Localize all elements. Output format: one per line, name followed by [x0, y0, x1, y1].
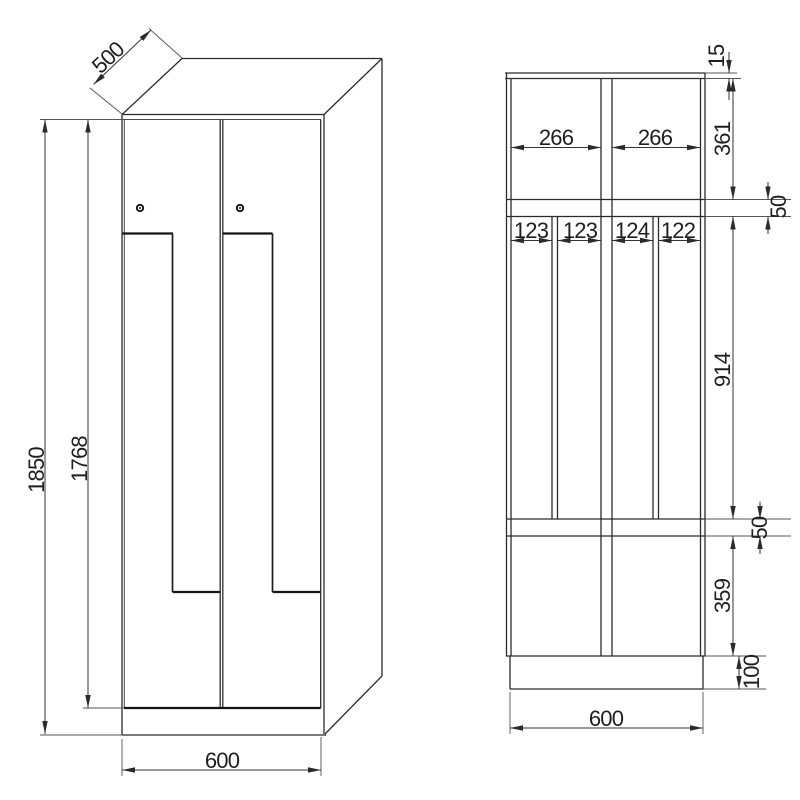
dimension-labels: 1850 1768 500 600 266 266 123 123 124 12…	[24, 36, 791, 773]
dim-label-lower-compartment: 359	[710, 578, 735, 613]
dim-label-top-panel: 15	[704, 44, 729, 67]
dim-label-upper-shelf: 50	[766, 195, 791, 218]
section-view	[505, 73, 705, 689]
z-doors	[123, 120, 321, 709]
dim-label-total-height: 1850	[24, 447, 49, 493]
front-perspective-view	[122, 59, 382, 736]
dim-label-slot-3: 124	[615, 218, 650, 243]
dim-label-upper-compartment: 361	[710, 121, 735, 156]
dim-label-door-height: 1768	[67, 436, 92, 482]
dim-label-bay-right: 266	[638, 125, 673, 150]
dim-label-slot-2: 123	[563, 218, 598, 243]
dim-label-depth: 500	[87, 36, 130, 78]
dim-label-front-width: 600	[205, 748, 240, 773]
cabinet-body-outline	[122, 59, 382, 736]
section-structure	[505, 73, 705, 689]
locker-technical-drawing: 1850 1768 500 600 266 266 123 123 124 12…	[0, 0, 800, 800]
door-lock-right-icon	[237, 205, 243, 211]
dimensions: 1850 1768 500 600 266 266 123 123 124 12…	[24, 29, 791, 777]
dim-label-plinth: 100	[739, 654, 764, 689]
dim-label-section-width: 600	[589, 706, 624, 731]
dim-label-lower-shelf: 50	[747, 516, 772, 539]
drawing-svg: 1850 1768 500 600 266 266 123 123 124 12…	[0, 0, 800, 800]
door-lock-left-icon	[137, 205, 143, 211]
dim-label-bay-left: 266	[539, 125, 574, 150]
dim-label-slot-1: 123	[514, 218, 549, 243]
dim-label-slot-4: 122	[661, 218, 696, 243]
extension-lines	[40, 29, 791, 777]
cabinet-inner-frame	[122, 120, 321, 709]
dim-label-middle-compartment: 914	[710, 352, 735, 387]
